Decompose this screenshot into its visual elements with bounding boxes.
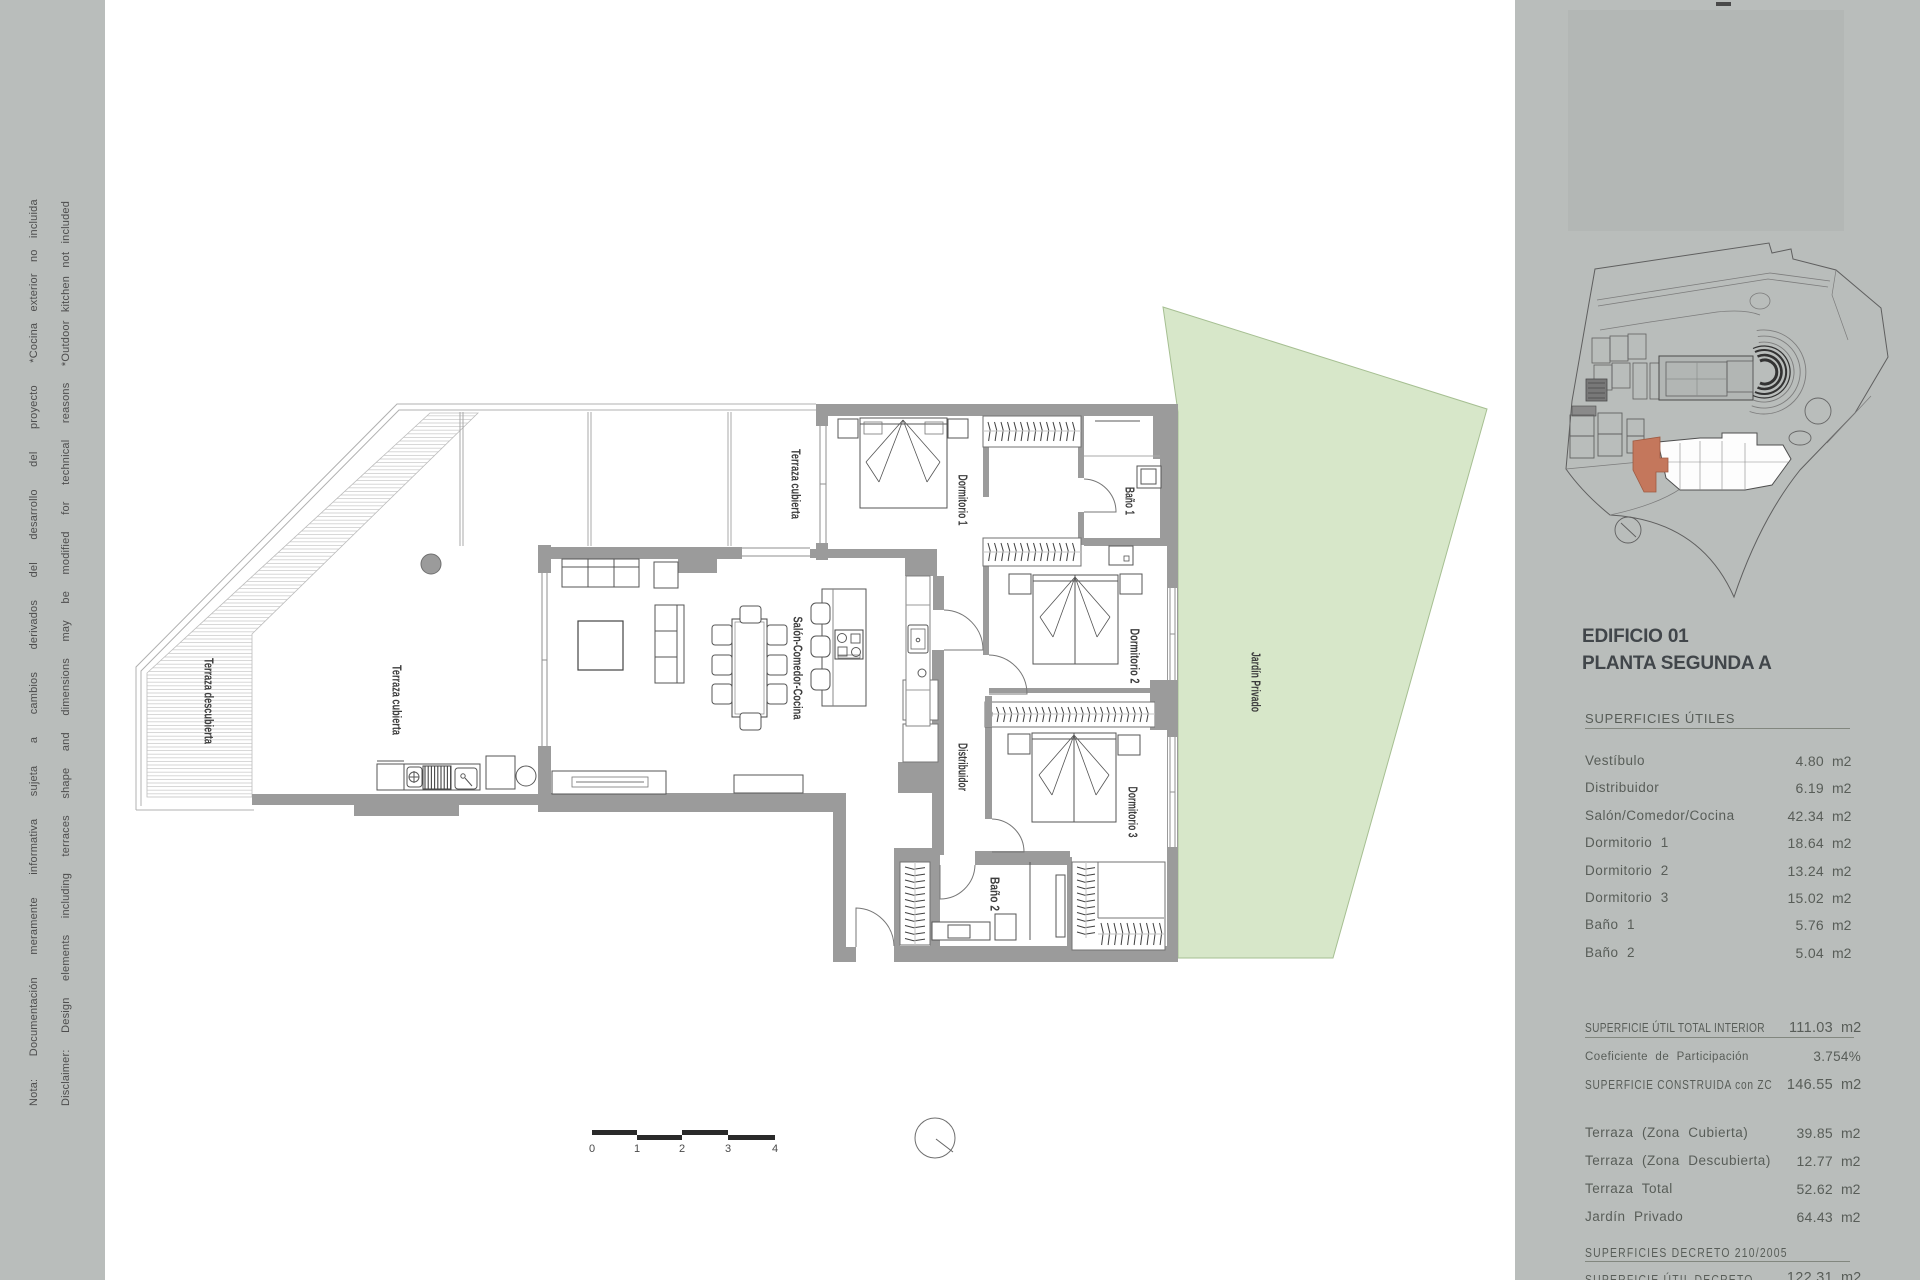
svg-text:3: 3 bbox=[725, 1143, 731, 1155]
svg-text:2: 2 bbox=[679, 1143, 685, 1155]
svg-text:Terraza cubierta: Terraza cubierta bbox=[390, 665, 405, 736]
svg-text:4: 4 bbox=[772, 1143, 778, 1155]
svg-text:Salón-Comedor-Cocina: Salón-Comedor-Cocina bbox=[791, 617, 806, 721]
svg-text:1: 1 bbox=[634, 1143, 640, 1155]
svg-text:Dormitorio 1: Dormitorio 1 bbox=[956, 475, 971, 526]
svg-text:Dormitorio 3: Dormitorio 3 bbox=[1126, 787, 1141, 838]
svg-text:Baño 1: Baño 1 bbox=[1123, 487, 1138, 515]
svg-text:0: 0 bbox=[589, 1143, 595, 1155]
svg-text:Jardín Privado: Jardín Privado bbox=[1249, 652, 1264, 712]
svg-text:Terraza descubierta: Terraza descubierta bbox=[202, 658, 217, 745]
svg-text:Distribuidor: Distribuidor bbox=[956, 743, 971, 791]
svg-text:Dormitorio 2: Dormitorio 2 bbox=[1128, 629, 1143, 684]
svg-text:Baño 2: Baño 2 bbox=[988, 877, 1003, 911]
svg-text:Terraza cubierta: Terraza cubierta bbox=[789, 449, 804, 520]
